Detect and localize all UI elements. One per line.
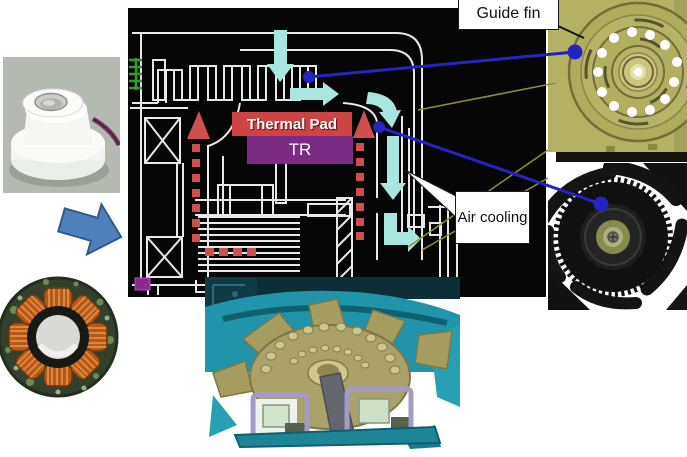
tr-label: TR: [247, 136, 353, 164]
fan-assembly-render: [205, 277, 460, 449]
process-arrow: [56, 193, 130, 267]
guide-fin-label: Guide fin: [458, 0, 559, 30]
thermal-pad-label: Thermal Pad: [232, 112, 352, 136]
seal-marker: [135, 278, 150, 290]
stator-coil-photo: [0, 270, 122, 402]
air-cooling-label: Air cooling: [455, 191, 530, 244]
figure-canvas: Guide fin Air cooling Thermal Pad TR: [0, 0, 687, 457]
guide-fin-render: [548, 0, 687, 162]
insulator-part-photo: [3, 57, 120, 193]
cooling-fan-photo: [548, 163, 687, 310]
